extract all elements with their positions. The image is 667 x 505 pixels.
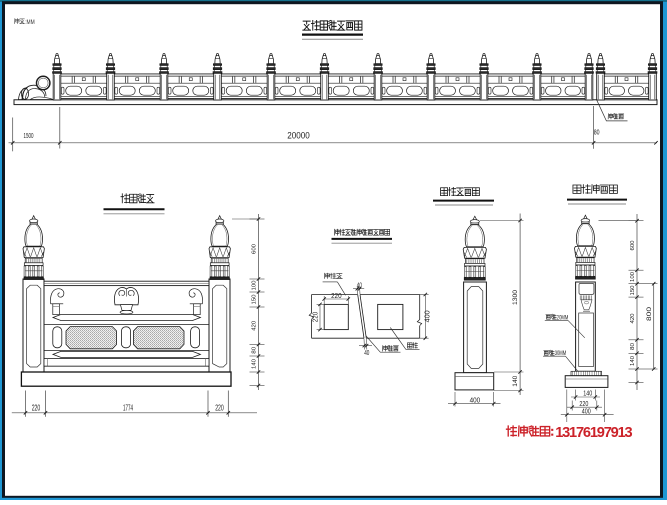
svg-text:150: 150 bbox=[252, 295, 258, 305]
svg-text:1300: 1300 bbox=[513, 289, 519, 305]
svg-text:80: 80 bbox=[252, 347, 258, 354]
svg-text:400: 400 bbox=[582, 407, 591, 416]
svg-text:20000: 20000 bbox=[287, 130, 310, 140]
svg-text:600: 600 bbox=[630, 241, 636, 251]
svg-text:420: 420 bbox=[252, 321, 258, 331]
svg-text:40: 40 bbox=[364, 350, 369, 357]
svg-text:80: 80 bbox=[594, 129, 600, 136]
svg-text:220: 220 bbox=[32, 403, 41, 412]
svg-text:400: 400 bbox=[422, 310, 431, 322]
svg-text:150: 150 bbox=[630, 286, 636, 296]
svg-text:140: 140 bbox=[513, 375, 519, 387]
svg-text:1774: 1774 bbox=[123, 403, 133, 412]
svg-text:600: 600 bbox=[252, 244, 258, 254]
svg-text:13176197913: 13176197913 bbox=[555, 425, 632, 441]
svg-text:420: 420 bbox=[630, 314, 636, 324]
svg-text:220: 220 bbox=[331, 291, 342, 300]
svg-text:1500: 1500 bbox=[24, 133, 34, 140]
svg-text:80: 80 bbox=[630, 343, 636, 350]
svg-text:140: 140 bbox=[252, 359, 258, 369]
svg-text:40: 40 bbox=[357, 282, 362, 289]
svg-text:140: 140 bbox=[630, 356, 636, 366]
svg-text:140: 140 bbox=[583, 389, 592, 398]
svg-text:100: 100 bbox=[630, 272, 636, 282]
svg-text:220: 220 bbox=[215, 403, 224, 412]
svg-text:100: 100 bbox=[252, 281, 258, 291]
svg-text::MM: :MM bbox=[25, 19, 35, 26]
svg-text:400: 400 bbox=[470, 395, 481, 404]
svg-text:220: 220 bbox=[311, 312, 320, 323]
svg-text:800: 800 bbox=[647, 306, 653, 321]
